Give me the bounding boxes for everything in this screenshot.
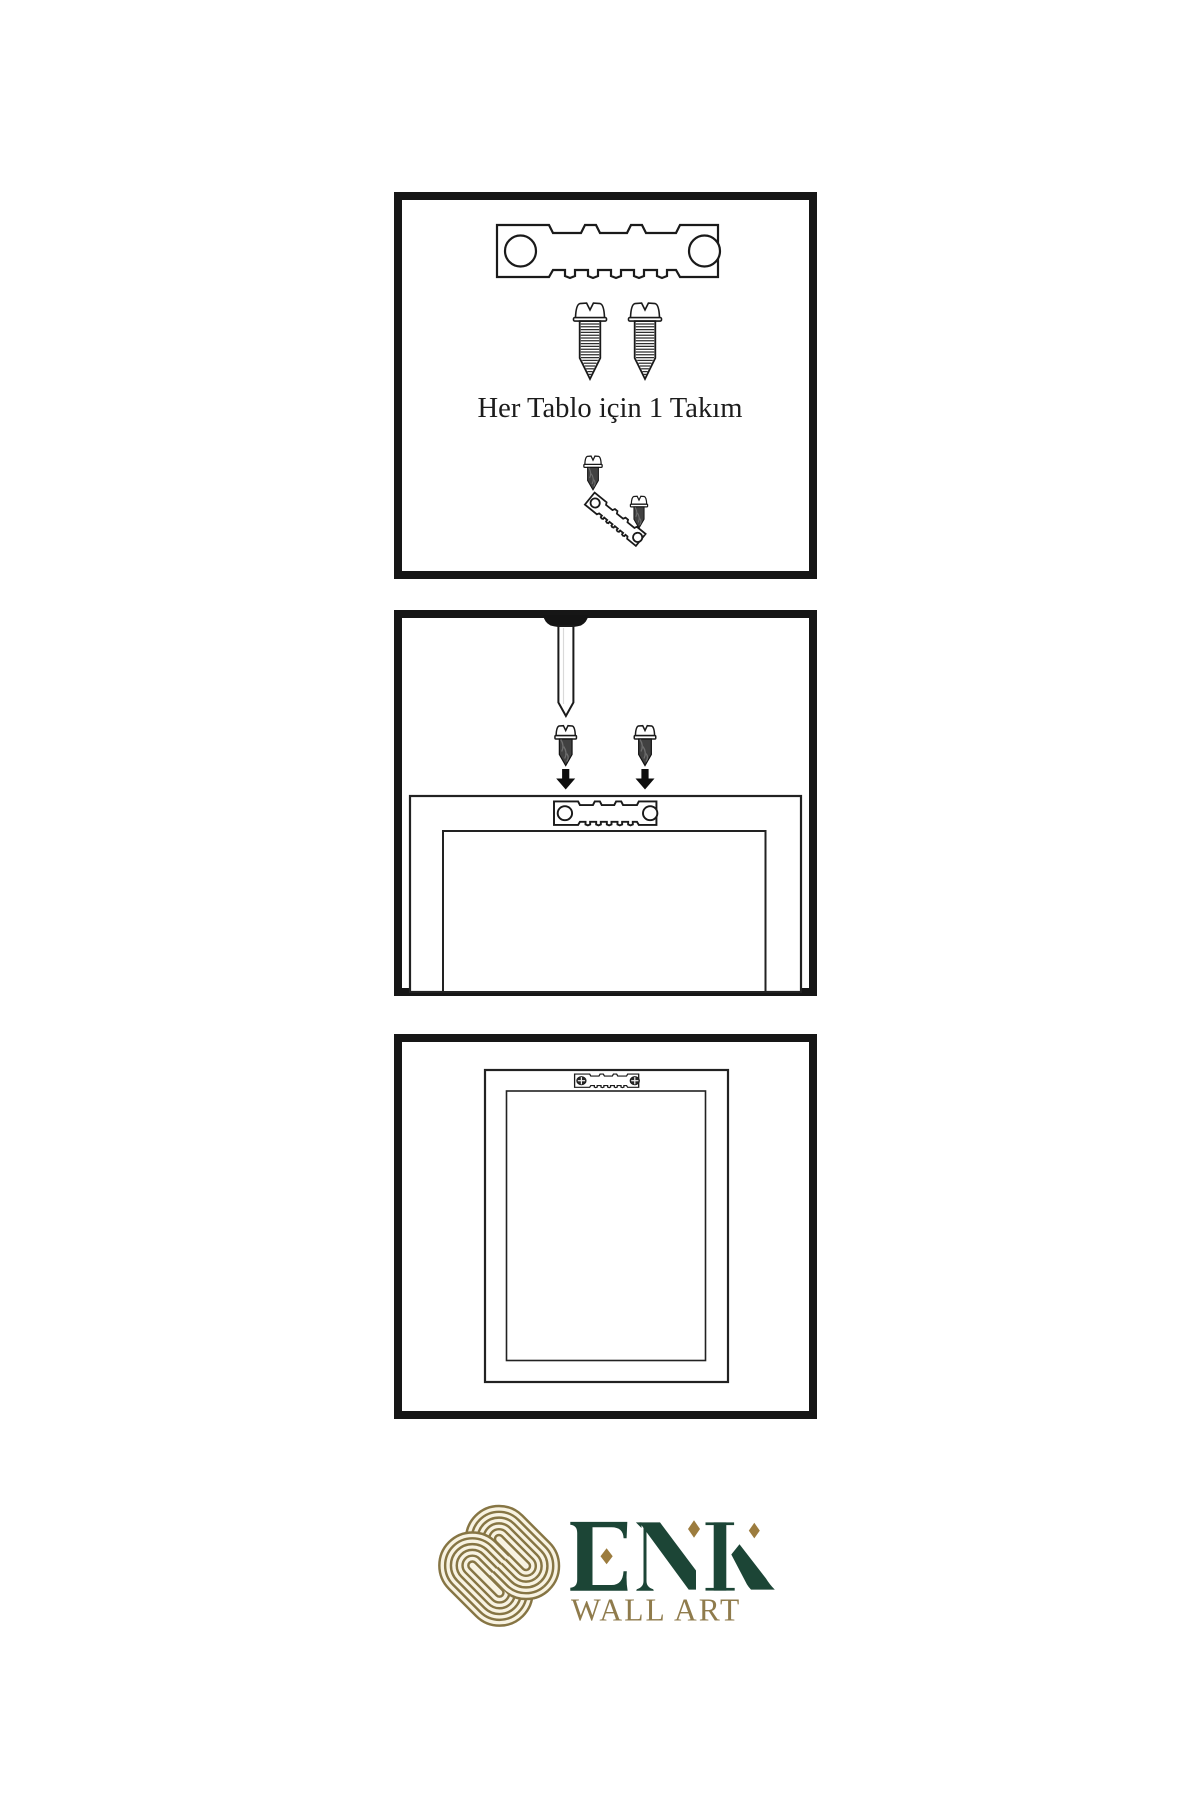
svg-text:Her Tablo için 1 Takım: Her Tablo için 1 Takım: [478, 393, 743, 424]
svg-text:WALL ART: WALL ART: [571, 1593, 741, 1628]
